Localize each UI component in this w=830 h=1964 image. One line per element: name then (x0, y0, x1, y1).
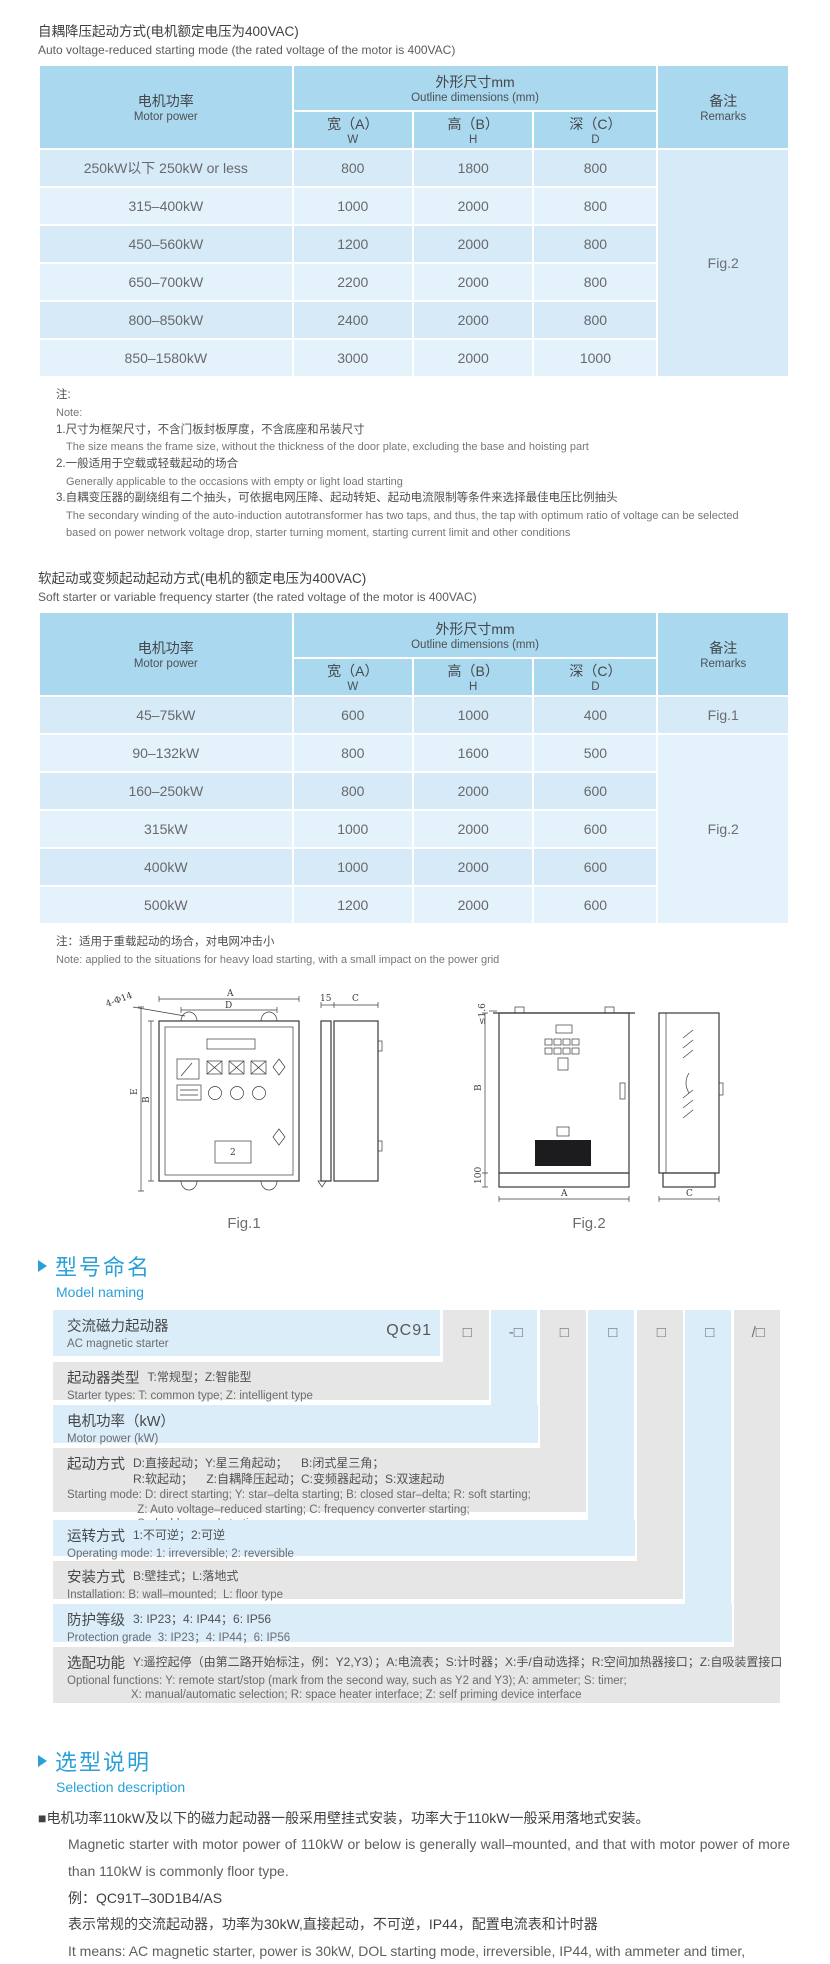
section1-title-zh: 自耦降压起动方式(电机额定电压为400VAC) (38, 22, 790, 42)
table-row: 250kW以下 250kW or less8001800800Fig.2 (40, 150, 788, 186)
fig1-drawing: A D 4-Φ14 E B (89, 983, 399, 1213)
model-naming-title-en: Model naming (56, 1284, 790, 1300)
dimension-cell: 2000 (414, 226, 532, 262)
product-name-en: AC magnetic starter (67, 1337, 440, 1351)
base-height-label: 100 (474, 1166, 484, 1183)
dimension-cell: 2000 (414, 188, 532, 224)
remark-cell: Fig.1 (658, 697, 788, 733)
notes-block-2: 注：适用于重载起动的场合，对电网冲击小 Note: applied to the… (56, 934, 790, 968)
code-box: □ (540, 1310, 589, 1356)
section2-title: 软起动或变频起动起动方式(电机的额定电压为400VAC) Soft starte… (38, 569, 790, 605)
motor-power-cell: 800–850kW (40, 302, 292, 338)
note-label-en: Note: (56, 405, 756, 422)
dimension-cell: 600 (294, 697, 412, 733)
remarks-header: 备注 Remarks (658, 66, 788, 148)
dimension-cell: 800 (294, 150, 412, 186)
model-row-motor-power: 电机功率（kW） Motor power (kW) (53, 1405, 538, 1443)
motor-power-cell: 500kW (40, 887, 292, 923)
height-header: 高（B）H (414, 659, 532, 695)
dimension-cell: 1600 (414, 735, 532, 771)
dimension-cell: 2400 (294, 302, 412, 338)
motor-power-cell: 450–560kW (40, 226, 292, 262)
dimension-cell: 800 (294, 773, 412, 809)
fig2-caption: Fig.2 (439, 1215, 739, 1232)
dimension-cell: 2000 (414, 340, 532, 376)
remark-cell: Fig.2 (658, 150, 788, 376)
table-row: 90–132kW8001600500Fig.2 (40, 735, 788, 771)
motor-power-header: 电机功率 Motor power (40, 66, 292, 148)
model-row-protection-grade: 防护等级3: IP23；4: IP44；6: IP56 Protection g… (53, 1604, 732, 1642)
motor-power-cell: 315kW (40, 811, 292, 847)
code-box: /□ (734, 1310, 783, 1356)
fig2-drawing: ≤1.6 B (439, 983, 739, 1213)
dimension-cell: 600 (534, 849, 656, 885)
dimension-cell: 600 (534, 773, 656, 809)
dimension-cell: 2000 (414, 773, 532, 809)
dimension-cell: 800 (294, 735, 412, 771)
motor-power-cell: 650–700kW (40, 264, 292, 300)
dimension-cell: 1000 (294, 849, 412, 885)
section-marker-icon (38, 1755, 47, 1767)
selection-example-label: 例：QC91T–30D1B4/AS (68, 1885, 790, 1912)
model-naming-header: 型号命名 (38, 1250, 790, 1282)
note-item-zh: 1.尺寸为框架尺寸，不含门板封板厚度，不含底座和吊装尺寸 (56, 422, 790, 440)
thickness-label: ≤1.6 (478, 1003, 488, 1025)
note2-en: Note: applied to the situations for heav… (56, 952, 756, 969)
dimension-cell: 600 (534, 811, 656, 847)
width-header: 宽（A）W (294, 659, 412, 695)
table-header-row: 电机功率 Motor power 外形尺寸mm Outline dimensio… (40, 66, 788, 110)
dimension-cell: 600 (534, 887, 656, 923)
code-box: □ (637, 1310, 686, 1356)
selection-title-en: Selection description (56, 1779, 790, 1795)
notes-block-1: 注: Note: 1.尺寸为框架尺寸，不含门板封板厚度，不含底座和吊装尺寸The… (56, 387, 790, 541)
code-stripe-7 (734, 1310, 780, 1703)
section1-title-en: Auto voltage-reduced starting mode (the … (38, 42, 790, 59)
soft-starter-dimensions-table: 电机功率 Motor power 外形尺寸mm Outline dimensio… (38, 611, 790, 925)
section1-title: 自耦降压起动方式(电机额定电压为400VAC) Auto voltage-red… (38, 22, 790, 58)
section2-title-en: Soft starter or variable frequency start… (38, 589, 790, 606)
dimension-cell: 3000 (294, 340, 412, 376)
note-label-zh: 注: (56, 387, 790, 405)
dimension-cell: 1200 (294, 226, 412, 262)
code-boxes-row: □-□□□□□/□ (443, 1310, 783, 1356)
height-header: 高（B）H (414, 112, 532, 148)
motor-power-cell: 160–250kW (40, 773, 292, 809)
note-item-en: The secondary winding of the auto-induct… (66, 508, 766, 541)
dimension-cell: 800 (534, 264, 656, 300)
model-naming-table: 交流磁力起动器 AC magnetic starter QC91 □-□□□□□… (53, 1310, 781, 1703)
motor-power-cell: 250kW以下 250kW or less (40, 150, 292, 186)
depth-header: 深（C）D (534, 112, 656, 148)
selection-title-zh: 选型说明 (55, 1745, 151, 1777)
model-row-starting-mode: 起动方式D:直接起动；Y:星三角起动； B:闭式星三角； R:软起动； Z:自耦… (53, 1448, 586, 1512)
fig2-block: ≤1.6 B (439, 983, 739, 1232)
dimension-cell: 1000 (294, 188, 412, 224)
remark-cell: Fig.2 (658, 735, 788, 923)
model-naming-title-zh: 型号命名 (55, 1250, 151, 1282)
dimension-cell: 1200 (294, 887, 412, 923)
dim-label-b: B (474, 1084, 484, 1091)
model-row-optional-functions: 选配功能Y:遥控起停（由第二路开始标注，例：Y2,Y3）；A:电流表；S:计时器… (53, 1647, 780, 1703)
dimension-cell: 2000 (414, 264, 532, 300)
motor-power-cell: 850–1580kW (40, 340, 292, 376)
outline-dimensions-header: 外形尺寸mm Outline dimensions (mm) (294, 66, 657, 110)
dim-label-b: B (142, 1096, 152, 1103)
dimension-cell: 800 (534, 188, 656, 224)
code-box: □ (589, 1310, 638, 1356)
table-header-row: 电机功率 Motor power 外形尺寸mm Outline dimensio… (40, 613, 788, 657)
dim-label-c: C (352, 994, 359, 1004)
dim-label-a: A (226, 989, 234, 999)
section2-title-zh: 软起动或变频起动起动方式(电机的额定电压为400VAC) (38, 569, 790, 589)
panel-tag-label: 2 (230, 1148, 236, 1158)
dimension-cell: 1800 (414, 150, 532, 186)
dimension-cell: 1000 (294, 811, 412, 847)
note-item-zh: 2.一般适用于空载或轻载起动的场合 (56, 456, 790, 474)
dimension-cell: 2000 (414, 849, 532, 885)
dimension-cell: 400 (534, 697, 656, 733)
selection-example-en: It means: AC magnetic starter, power is … (68, 1938, 790, 1964)
dimension-cell: 800 (534, 302, 656, 338)
selection-header: 选型说明 (38, 1745, 790, 1777)
dimension-cell: 2000 (414, 302, 532, 338)
catalog-page: 自耦降压起动方式(电机额定电压为400VAC) Auto voltage-red… (0, 0, 830, 1964)
dimension-cell: 1000 (534, 340, 656, 376)
outline-dimensions-header: 外形尺寸mm Outline dimensions (mm) (294, 613, 657, 657)
model-row-starter-type: 起动器类型T:常规型；Z:智能型 Starter types: T: commo… (53, 1362, 489, 1400)
model-prefix: QC91 (386, 1322, 432, 1340)
dimension-cell: 2000 (414, 887, 532, 923)
dim-label-a: A (560, 1189, 568, 1199)
selection-p1-zh: ■电机功率110kW及以下的磁力起动器一般采用壁挂式安装，功率大于110kW一般… (38, 1805, 790, 1832)
auto-voltage-dimensions-table: 电机功率 Motor power 外形尺寸mm Outline dimensio… (38, 64, 790, 378)
note-item-zh: 3.自耦变压器的副绕组有二个抽头，可依据电网压降、起动转矩、起动电流限制等条件来… (56, 490, 790, 508)
depth-header: 深（C）D (534, 659, 656, 695)
dimension-cell: 1000 (414, 697, 532, 733)
dim-label-c: C (686, 1189, 693, 1199)
motor-power-cell: 90–132kW (40, 735, 292, 771)
section-marker-icon (38, 1260, 47, 1272)
width-header: 宽（A）W (294, 112, 412, 148)
product-name-zh: 交流磁力起动器 (67, 1315, 432, 1336)
dim-label-offset: 15 (320, 994, 332, 1004)
note-item-en: The size means the frame size, without t… (66, 439, 766, 456)
dim-label-e: E (130, 1088, 140, 1095)
fig1-block: A D 4-Φ14 E B (89, 983, 399, 1232)
dimension-cell: 800 (534, 150, 656, 186)
selection-example-zh: 表示常规的交流起动器，功率为30kW,直接起动，不可逆，IP44，配置电流表和计… (68, 1911, 790, 1938)
motor-power-cell: 45–75kW (40, 697, 292, 733)
dim-label-d: D (225, 1001, 232, 1011)
model-row-product: 交流磁力起动器 AC magnetic starter QC91 (53, 1310, 440, 1356)
selection-body: ■电机功率110kW及以下的磁力起动器一般采用壁挂式安装，功率大于110kW一般… (38, 1805, 790, 1964)
code-box: □ (443, 1310, 492, 1356)
code-box: -□ (492, 1310, 541, 1356)
dimension-cell: 500 (534, 735, 656, 771)
model-row-operating-mode: 运转方式1:不可逆；2:可逆 Operating mode: 1: irreve… (53, 1520, 635, 1556)
motor-power-cell: 315–400kW (40, 188, 292, 224)
note-item-en: Generally applicable to the occasions wi… (66, 474, 766, 491)
code-box: □ (686, 1310, 735, 1356)
motor-power-cell: 400kW (40, 849, 292, 885)
remarks-header: 备注 Remarks (658, 613, 788, 695)
selection-p1-en: Magnetic starter with motor power of 110… (68, 1831, 790, 1884)
motor-power-header: 电机功率 Motor power (40, 613, 292, 695)
outline-figures: A D 4-Φ14 E B (38, 983, 790, 1232)
model-row-installation: 安装方式B:壁挂式；L:落地式 Installation: B: wall–mo… (53, 1561, 683, 1599)
code-stripe-6 (685, 1310, 731, 1642)
dimension-cell: 2200 (294, 264, 412, 300)
table-row: 45–75kW6001000400Fig.1 (40, 697, 788, 733)
dimension-cell: 2000 (414, 811, 532, 847)
fig1-caption: Fig.1 (89, 1215, 399, 1232)
note2-zh: 注：适用于重载起动的场合，对电网冲击小 (56, 934, 790, 952)
dimension-cell: 800 (534, 226, 656, 262)
holes-label: 4-Φ14 (105, 991, 135, 1010)
